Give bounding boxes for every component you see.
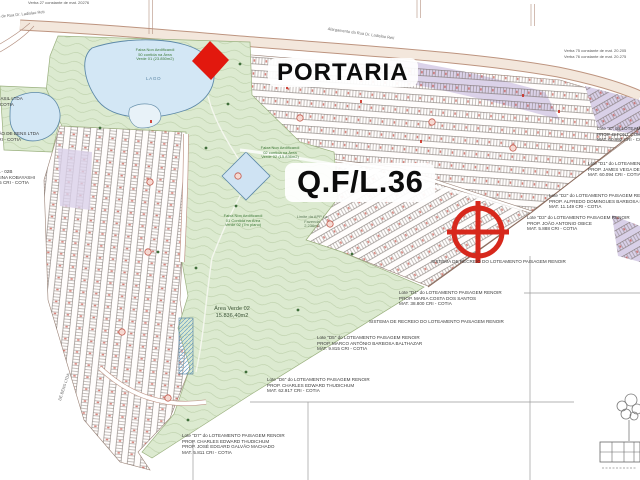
app-limit-note: Limite da APP La Fazenda 2.236m2 xyxy=(296,215,328,229)
left-owner-text-3: DA - 02BUSINA KOBAYASHI005 CRI - COTIA xyxy=(0,169,35,186)
faixa-note-3: Faixa Non Aedificandi 01 Contida na Área… xyxy=(222,214,264,228)
left-owner-text-2: ÇÃO DE BENS LTDACRI - COTIA xyxy=(0,131,39,142)
verba-note-right-2: Verba 76 constante de mat. 20.275 xyxy=(564,55,626,60)
annotation-sistema-1: SISTEMA DE RECREIO DO LOTEAMENTO PAISAGE… xyxy=(431,259,566,265)
annotation-lote-d1: Lote "D1" do LOTEAMENTO PAISAGEM RENOIRP… xyxy=(588,161,640,178)
annotation-lote-d7: Lote "D7" do LOTEAMENTO PAISAGEM RENOIRP… xyxy=(182,433,285,455)
site-plan-map: PORTARIA Q.F/L.36 Área Verde 02 15.836,4… xyxy=(0,0,640,480)
annotation-lote-d5: Lote "D5" do LOTEAMENTO PAISAGEM RENOIRP… xyxy=(317,335,422,352)
quadra-lote-label: Q.F/L.36 xyxy=(285,163,435,202)
area-verde-label: Área Verde 02 15.836,40m2 xyxy=(206,306,258,321)
pond xyxy=(129,104,161,128)
annotation-sistema-2: SISTEMA DE RECREIO DO LOTEAMENTO PAISAGE… xyxy=(369,319,504,325)
drainage-strip xyxy=(179,318,193,374)
annotation-lote-c: Lote "C" do LOTEAMENTO PAISAGEM RENOIRPR… xyxy=(597,126,640,143)
lake-name-label: LAGO xyxy=(146,76,161,81)
annotation-lote-d2: Lote "D2" do LOTEAMENTO PAISAGEM RENOIRP… xyxy=(549,193,640,210)
portaria-label: PORTARIA xyxy=(268,58,418,87)
annotation-lote-d6: Lote "D6" do LOTEAMENTO PAISAGEM RENOIRP… xyxy=(267,377,370,394)
verba-note-left: Verba 27 constante de mat. 20276 xyxy=(28,1,89,6)
legend-tree-icon xyxy=(617,394,640,441)
annotation-lote-d4: Lote "D4" do LOTEAMENTO PAISAGEM RENOIRP… xyxy=(399,290,502,307)
legend-scale-box xyxy=(600,442,640,468)
left-owner-text-1: RASIL LTDA- COTIA xyxy=(0,96,23,107)
annotation-lote-d3: Lote "D3" do LOTEAMENTO PAISAGEM RENOIRP… xyxy=(527,215,630,232)
faixa-note-1: Faixa Non Aedificandi 50 contida na Área… xyxy=(134,48,176,62)
faixa-note-2: Faixa Non Aedificandi 02 contida na Área… xyxy=(260,146,300,160)
